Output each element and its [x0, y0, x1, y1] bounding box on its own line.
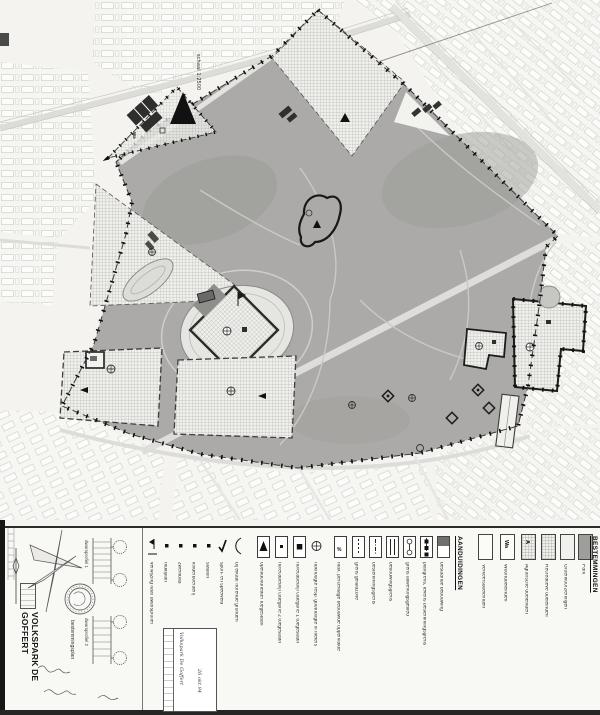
agricultural-swatch: A: [521, 534, 536, 560]
large-square-symbol-icon: [293, 536, 306, 558]
double-line-icon: [386, 536, 399, 558]
circle-line-icon: [403, 536, 416, 558]
scan-artifact: [0, 33, 9, 46]
square-dot-line-icon: [420, 536, 433, 558]
legend-strip: VOLKSPARK DE GOFFERT bestemmingsplan dwa…: [0, 528, 600, 715]
profile-reference-icon: [147, 536, 158, 556]
plan-type-label: bestemmingsplan: [69, 620, 75, 659]
height-circle-icon: [311, 536, 322, 556]
zoning-map-canvas: Wa schaal 1:2500: [0, 0, 600, 528]
plan-title: VOLKSPARK DE GOFFERT: [20, 612, 40, 715]
dot-icon: [189, 536, 200, 556]
green-swatch: [560, 534, 575, 560]
crossed-needles-icon: [28, 530, 82, 612]
existing-buildings-swatch: [437, 536, 450, 558]
dot-icon: [175, 536, 186, 556]
municipal-seal-icon: [65, 584, 95, 614]
scale-label: schaal 1:2500: [195, 54, 201, 90]
cross-section-2-drawing: [93, 616, 127, 665]
dash-dot-line-icon: [369, 536, 382, 558]
percentage-box-icon: %: [334, 536, 347, 558]
check-icon: [217, 536, 228, 556]
short-dash-line-icon: [352, 536, 365, 558]
bracket-curve-icon: [232, 536, 243, 556]
small-square-symbol-icon: [275, 536, 288, 558]
stamp-handwritten-date: 26 okt 94: [196, 669, 202, 693]
sports-field-west: [60, 348, 162, 426]
dot-icon: [203, 536, 214, 556]
parcel-code-label: Wa: [132, 132, 137, 139]
title-mini-table: [20, 583, 36, 609]
recreation-swatch: [541, 534, 556, 560]
profile-2-label: dwarsprofiel 2: [84, 618, 89, 646]
scanned-zoning-plan-sheet: { "colors": { "paper": "#f4f3f0", "park_…: [0, 0, 600, 715]
site-plan-map: Wa schaal 1:2500: [0, 0, 600, 528]
triangle-symbol-icon: [257, 536, 270, 558]
signature-scribbles: [38, 666, 118, 700]
traffic-swatch: [478, 534, 493, 560]
residential-swatch: Wa: [500, 534, 515, 560]
dot-icon: [161, 536, 172, 556]
sports-field-east: [174, 356, 296, 438]
profile-1-label: dwarsprofiel 1: [84, 540, 89, 568]
cross-section-1-drawing: [93, 538, 127, 587]
